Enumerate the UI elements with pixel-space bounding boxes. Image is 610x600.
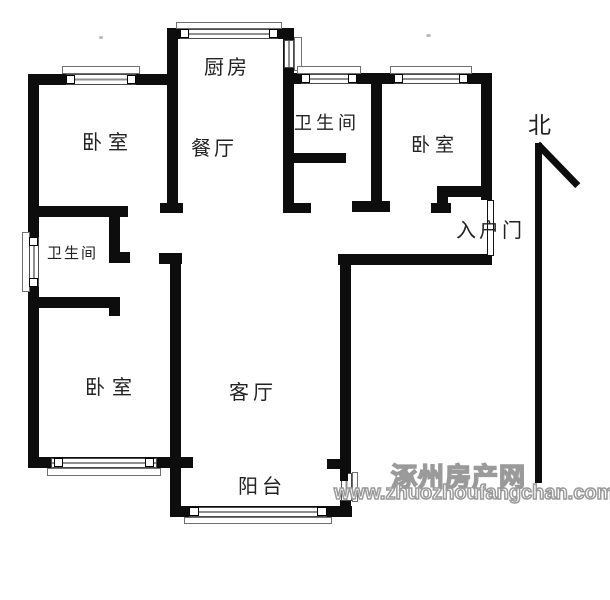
window-jamb <box>180 29 189 38</box>
window-sill <box>47 468 161 476</box>
window-jamb <box>317 507 327 516</box>
wall-spine-cap <box>159 253 182 264</box>
room-label-bath-upper: 卫生间 <box>294 109 360 135</box>
room-label-balcony: 阳台 <box>238 470 286 499</box>
window-sill <box>390 66 472 74</box>
window-balcony <box>189 507 327 517</box>
window-jamb <box>269 29 278 38</box>
wall-bathL-bottom <box>28 297 120 308</box>
floor-plan: 厨房 餐厅 卫生间 卧室 入户门 北 卧室 卫生间 卧室 客厅 阳台 涿州房产网… <box>0 0 610 600</box>
wall-bath-bedroom-divider <box>371 73 382 205</box>
window-kitchen-top <box>180 29 278 39</box>
window-jamb <box>127 75 136 84</box>
room-label-bedroom-top-left: 卧室 <box>82 126 134 155</box>
window-jamb <box>301 74 310 83</box>
compass-north-label: 北 <box>528 106 551 140</box>
room-label-bedroom-top-right: 卧室 <box>411 130 459 157</box>
window-sill <box>297 66 361 74</box>
window-sill <box>62 66 140 74</box>
window-sill <box>184 517 332 524</box>
scan-speck <box>426 34 431 37</box>
wall-right-outer <box>481 73 492 200</box>
wall-bath-upper-inner <box>283 153 346 163</box>
room-label-bedroom-bottom-left: 卧室 <box>85 371 139 400</box>
room-label-entry-door: 入户门 <box>456 214 525 243</box>
wall-divider-foot <box>352 201 390 212</box>
window-sill <box>176 22 282 29</box>
window-jamb <box>459 74 468 83</box>
wall-spine-upper <box>167 28 178 213</box>
wall-bathL-bottom-jamb <box>109 297 120 316</box>
wall-entry-south <box>338 254 492 265</box>
wall-bathL-right-foot <box>109 252 130 263</box>
room-label-living: 客厅 <box>229 376 277 405</box>
window-jamb <box>66 75 75 84</box>
window-bedroomTL <box>66 74 136 85</box>
window-jamb <box>394 74 403 83</box>
scan-speck <box>99 36 103 39</box>
wall-spine-upper-foot <box>160 203 183 213</box>
wall-living-right <box>340 265 351 473</box>
window-jamb <box>340 472 348 481</box>
window-kitchen-right <box>284 40 294 68</box>
watermark-site-url: www.zhuozhoufangchan.com <box>334 482 610 505</box>
north-arrow-line <box>535 143 542 483</box>
window-jamb <box>29 278 38 287</box>
room-label-dining: 餐厅 <box>191 132 237 161</box>
wall-kitchen-right-foot <box>283 203 311 213</box>
room-label-kitchen: 厨房 <box>204 51 250 80</box>
wall-left-lower <box>28 287 39 468</box>
window-bedroomTR <box>394 74 468 84</box>
window-jamb <box>29 237 38 246</box>
window-jamb <box>189 507 199 516</box>
room-label-bath-lower: 卫生间 <box>47 242 98 263</box>
window-bedroomBL <box>51 458 157 468</box>
wall-bedroomTR-door-h <box>437 186 492 197</box>
wall-bedroomTR-door-foot <box>431 203 451 213</box>
wall-bathL-top <box>28 206 128 217</box>
wall-living-south-stub <box>327 459 341 469</box>
window-jamb <box>145 458 154 467</box>
window-jamb <box>54 458 63 467</box>
wall-spine-lower <box>170 264 181 467</box>
window-jamb <box>348 74 357 83</box>
